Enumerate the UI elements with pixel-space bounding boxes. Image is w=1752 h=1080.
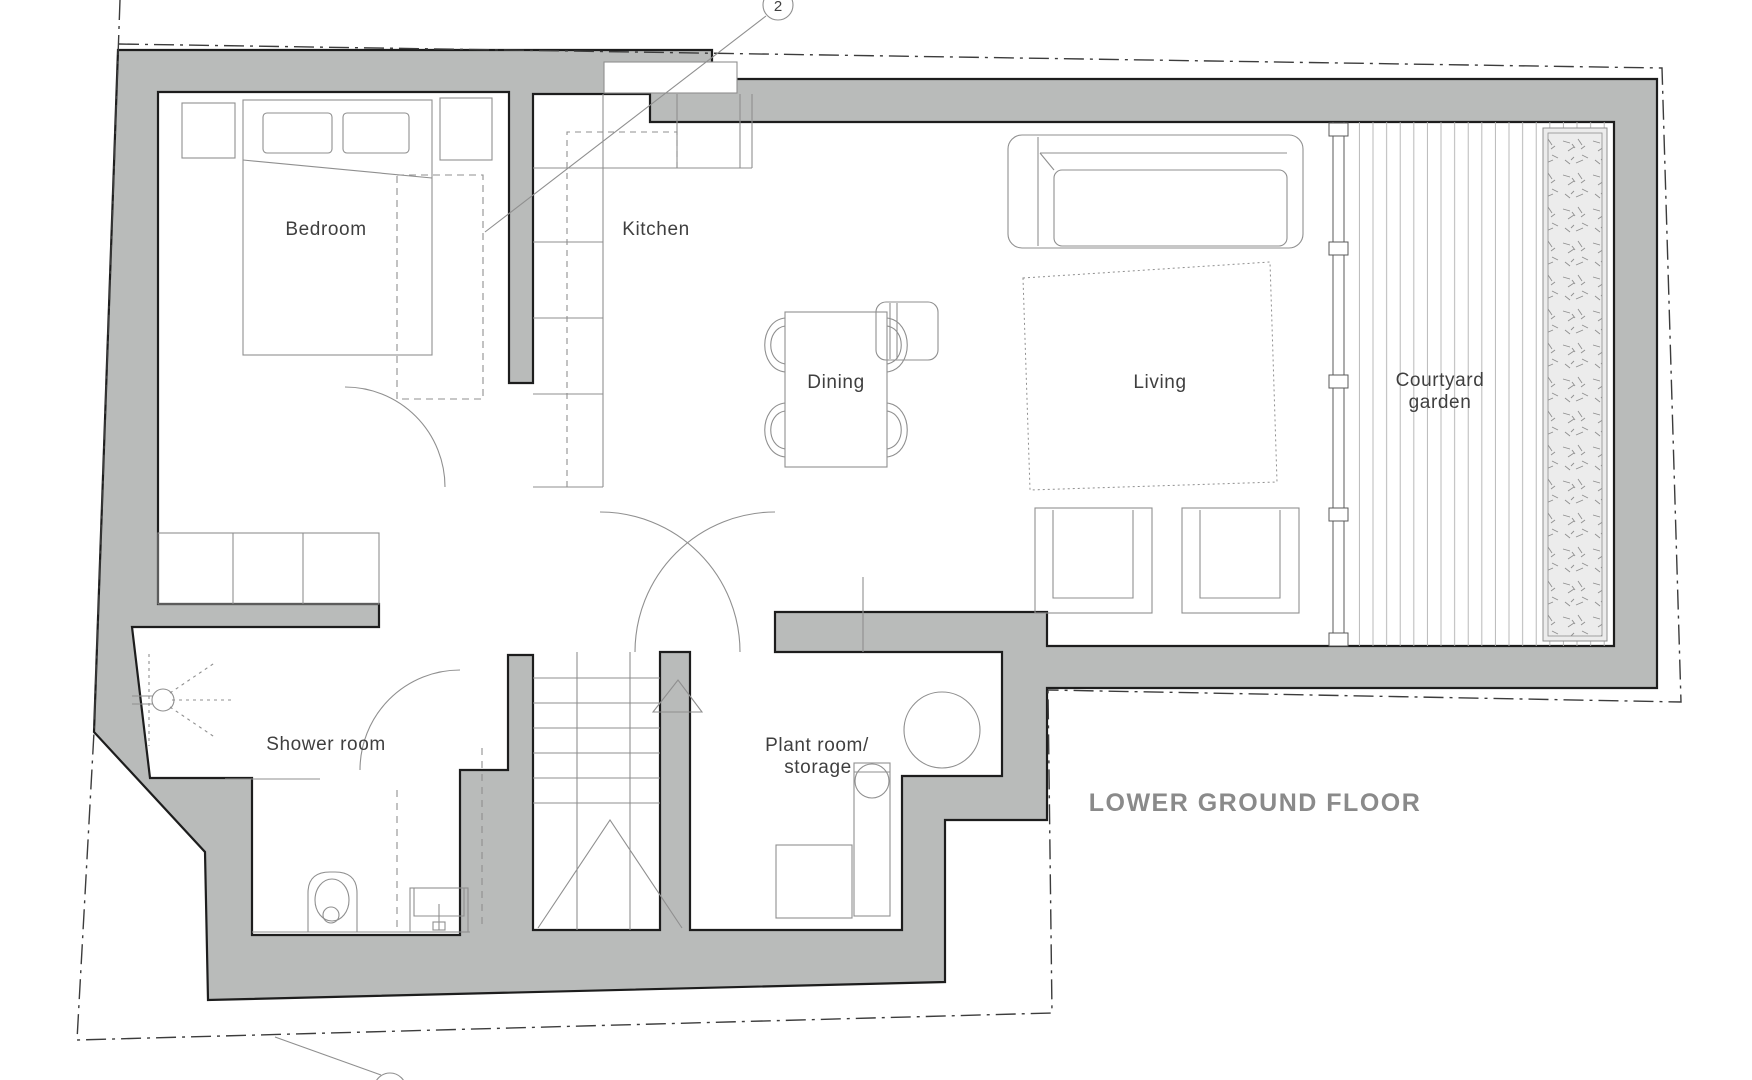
label-plant-room-line1: Plant room/ bbox=[765, 735, 869, 756]
armchair bbox=[1035, 508, 1152, 613]
glazed-screen bbox=[1329, 122, 1348, 646]
shower-door-arc bbox=[360, 670, 460, 770]
dining-chair bbox=[765, 318, 785, 372]
section-leader-bottom bbox=[275, 1037, 381, 1075]
label-plant-room-line2: storage bbox=[784, 757, 852, 778]
hall-door-arc-right bbox=[635, 512, 775, 652]
label-dining: Dining bbox=[807, 372, 864, 393]
label-kitchen: Kitchen bbox=[622, 219, 690, 240]
bedside-table-right bbox=[440, 98, 492, 160]
worktop-dashed-line bbox=[567, 132, 677, 487]
kitchen-units bbox=[533, 62, 752, 487]
bedroom-dashed-zone bbox=[397, 175, 483, 399]
label-bedroom: Bedroom bbox=[285, 219, 366, 240]
bedroom-door-arc bbox=[345, 387, 445, 487]
tall-units bbox=[604, 62, 737, 93]
water-tank bbox=[904, 692, 980, 768]
dining-chair bbox=[887, 403, 907, 457]
floor-plan-drawing: 2 Bedroom Kitchen Dining Living Courtyar… bbox=[0, 0, 1752, 1080]
label-courtyard-line2: garden bbox=[1409, 392, 1472, 413]
cylinder-unit bbox=[854, 763, 890, 916]
label-courtyard-line1: Courtyard bbox=[1396, 370, 1485, 391]
pillow bbox=[263, 113, 332, 153]
shower-head bbox=[132, 654, 232, 746]
section-marker-top-label: 2 bbox=[774, 0, 782, 15]
label-shower-room: Shower room bbox=[266, 734, 386, 755]
floor-plan-page: 2 Bedroom Kitchen Dining Living Courtyar… bbox=[0, 0, 1752, 1080]
planter-bed-inner bbox=[1548, 133, 1602, 636]
sofa bbox=[1008, 135, 1303, 248]
label-living: Living bbox=[1133, 372, 1186, 393]
dining-chair bbox=[765, 403, 785, 457]
pillow bbox=[343, 113, 409, 153]
hall-door-arc-left bbox=[600, 512, 740, 652]
toilet bbox=[308, 872, 357, 932]
bedside-table-left bbox=[182, 103, 235, 158]
storage-shelf bbox=[776, 845, 852, 918]
wardrobe bbox=[158, 533, 379, 604]
armchair bbox=[1182, 508, 1299, 613]
page-title: LOWER GROUND FLOOR bbox=[1089, 789, 1422, 817]
